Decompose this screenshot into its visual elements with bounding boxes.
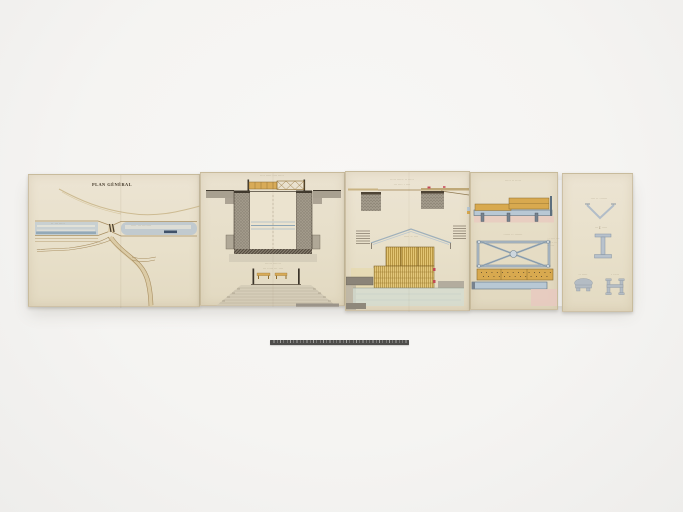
fold-crease <box>409 172 410 312</box>
canal-right-label: ····· ··· ········ <box>131 224 151 228</box>
panel-iron-profiles: ···· ·· ······· ··· I ····· ·· ····· · ·… <box>562 173 633 312</box>
panel-deck-details: ····· ·· ····· ······ ·· ······· <box>470 172 558 310</box>
canal-left-label: ·· ··· ····· <box>51 222 64 226</box>
deck-caption-top: ····· ·· ····· <box>505 179 521 183</box>
road-sweep-lower <box>35 237 156 306</box>
cross-section-drawing <box>201 173 346 307</box>
longitudinal-section-drawing <box>346 172 471 312</box>
marginal-annotation: ··· ····· ···· ···· ·· ··· ·· ····· <box>547 238 560 248</box>
section-caption-mid-2: ··· ····· ··· ···· <box>263 267 283 271</box>
lower-steps-section <box>211 269 341 307</box>
scale-bar <box>270 340 409 345</box>
lock-gates-icon <box>108 224 115 232</box>
chair-profile-right <box>606 279 624 295</box>
photograph-background: PLAN GÉNÉRAL ·· ··· ····· ····· ··· ····… <box>0 0 683 512</box>
ibeam-caption: ··· I ····· <box>595 226 608 230</box>
road-left-label: ··· ···· <box>37 248 46 252</box>
i-beam-profile <box>595 234 612 258</box>
road-lower-label: ·· ····· <box>95 241 104 245</box>
river-bank-lines <box>59 189 200 215</box>
canal-left-wash <box>35 222 98 235</box>
long-caption-1: ····· ······ ·· ····· <box>390 178 413 182</box>
fold-crease <box>121 175 122 308</box>
railing-truss-elevation <box>477 241 550 268</box>
section-caption-top: ···· ····· ···· ····· <box>260 174 283 178</box>
lower-metal-beam <box>472 282 557 306</box>
gable-caption: ····· ·· ···· <box>404 235 419 239</box>
timber-handrail-beam <box>477 269 553 280</box>
angle-iron-v-profile <box>585 204 616 218</box>
plan-title: PLAN GÉNÉRAL <box>92 182 132 187</box>
profiles-drawing <box>563 174 634 313</box>
v-profile-caption: ···· ·· ······· <box>591 197 608 201</box>
panel-cross-sections: ···· ····· ···· ····· ······ ······· ···… <box>200 172 345 306</box>
gable-roof-outline <box>371 229 451 249</box>
section-caption-mid-1: ······ ······· <box>265 262 281 266</box>
profile-left-caption: ·· ····· <box>579 273 588 277</box>
deck-caption-mid: ······ ·· ······· <box>504 233 523 237</box>
profile-right-caption: · ····· <box>611 273 619 277</box>
panel-plan-general: PLAN GÉNÉRAL ·· ··· ····· ····· ··· ····… <box>28 174 200 307</box>
deck-section-top <box>474 196 554 223</box>
scale-bar-ticks <box>271 340 408 342</box>
deck-detail-drawing <box>471 173 559 311</box>
fold-crease <box>273 173 274 307</box>
long-caption-2: ··· ···· · ···· <box>394 183 411 187</box>
bridge-deck-truss <box>247 180 305 192</box>
rail-profile-left <box>575 279 593 292</box>
plan-general-drawing <box>29 175 201 308</box>
panel-longitudinal-sections: ····· ······ ·· ····· ··· ···· · ···· ··… <box>345 171 470 311</box>
